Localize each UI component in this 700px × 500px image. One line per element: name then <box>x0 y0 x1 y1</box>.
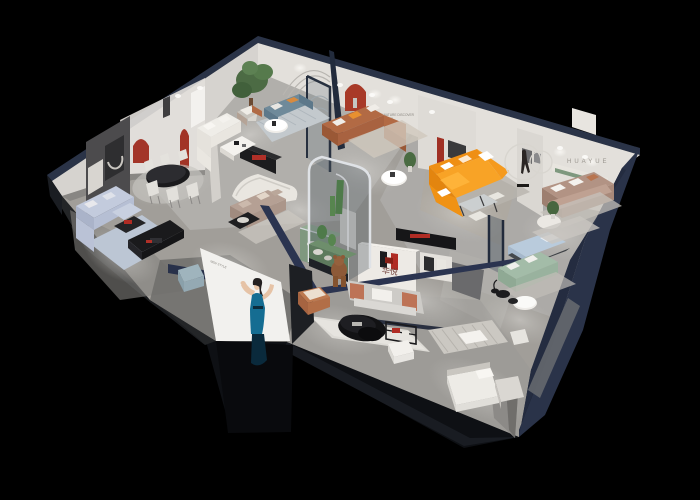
svg-text:HUAYUE: HUAYUE <box>567 159 610 165</box>
svg-text:华悦: 华悦 <box>381 265 398 277</box>
